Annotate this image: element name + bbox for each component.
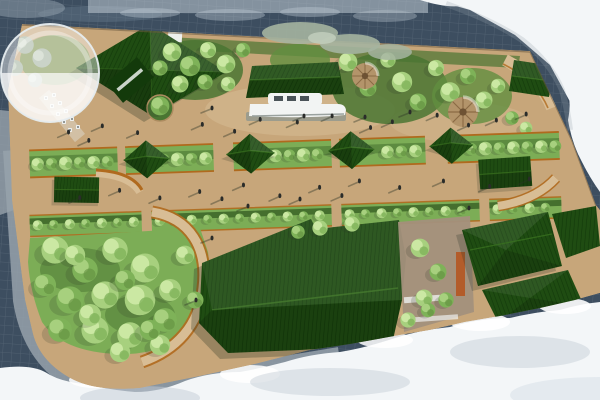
east-gabled-pavilion bbox=[475, 156, 532, 193]
gazebo bbox=[448, 97, 478, 127]
west-gabled-pavilion bbox=[51, 177, 99, 207]
gazebo bbox=[352, 63, 378, 89]
glass-dome-canopy bbox=[1, 24, 99, 122]
site-plan-rendering bbox=[0, 0, 600, 400]
boat-pavilion-roof bbox=[246, 62, 344, 98]
masterplan-canvas bbox=[0, 0, 600, 400]
